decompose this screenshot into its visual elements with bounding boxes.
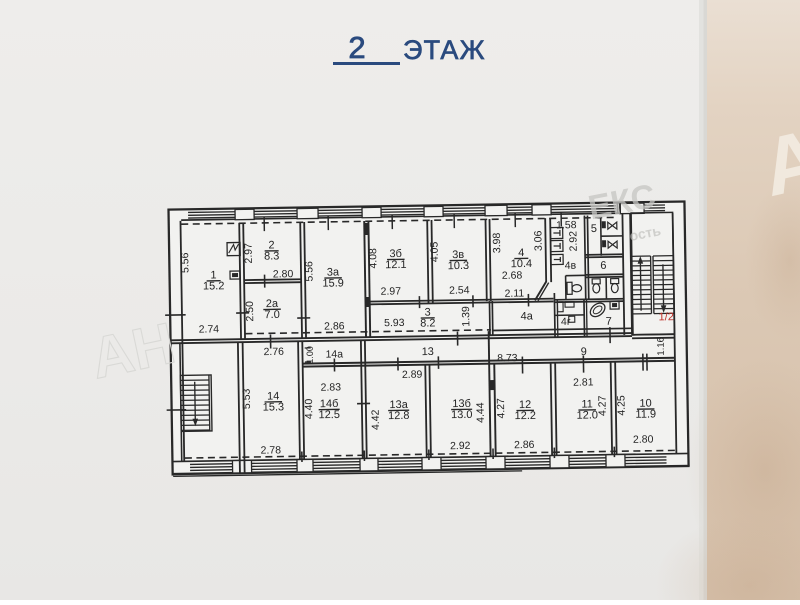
svg-text:2.97: 2.97 [381, 285, 402, 297]
svg-text:1.39: 1.39 [460, 306, 472, 327]
svg-text:2.81: 2.81 [573, 376, 594, 388]
svg-text:5.53: 5.53 [241, 388, 253, 409]
svg-text:10.3: 10.3 [448, 260, 470, 272]
svg-text:2.92: 2.92 [450, 440, 471, 452]
svg-text:2.97: 2.97 [243, 243, 255, 264]
svg-text:2.83: 2.83 [321, 381, 342, 393]
svg-text:4г: 4г [561, 316, 571, 328]
svg-text:2.68: 2.68 [502, 270, 523, 282]
svg-text:2.80: 2.80 [273, 268, 294, 280]
svg-text:4в: 4в [565, 260, 577, 272]
svg-text:4.05: 4.05 [429, 241, 441, 262]
svg-text:7: 7 [606, 316, 612, 328]
svg-text:5.56: 5.56 [303, 261, 315, 282]
svg-text:3.06: 3.06 [532, 230, 544, 251]
svg-text:4.44: 4.44 [475, 402, 487, 423]
svg-text:2.54: 2.54 [449, 284, 470, 296]
svg-text:2: 2 [348, 30, 365, 65]
svg-text:2.50: 2.50 [244, 301, 256, 322]
svg-text:2.86: 2.86 [514, 439, 535, 451]
svg-text:2.78: 2.78 [260, 444, 281, 456]
svg-text:4.25: 4.25 [615, 395, 627, 416]
svg-text:4.42: 4.42 [370, 409, 382, 430]
svg-text:12.0: 12.0 [576, 409, 598, 421]
svg-text:3.98: 3.98 [491, 232, 503, 253]
svg-text:10.4: 10.4 [511, 258, 533, 270]
svg-text:13.0: 13.0 [451, 409, 473, 421]
svg-text:1.16: 1.16 [656, 337, 667, 356]
svg-text:12.8: 12.8 [388, 410, 410, 422]
svg-text:8.2: 8.2 [420, 317, 435, 329]
svg-text:2.80: 2.80 [633, 434, 654, 446]
svg-text:4.27: 4.27 [596, 395, 608, 416]
svg-text:1/2: 1/2 [659, 311, 674, 323]
svg-text:5.93: 5.93 [384, 317, 405, 329]
svg-text:7.0: 7.0 [264, 309, 279, 321]
svg-text:2.11: 2.11 [504, 288, 524, 300]
svg-text:15.2: 15.2 [203, 280, 225, 292]
svg-text:15.3: 15.3 [263, 401, 285, 413]
svg-text:14а: 14а [325, 348, 343, 360]
svg-text:11.9: 11.9 [635, 408, 656, 420]
svg-text:12.5: 12.5 [318, 409, 340, 421]
svg-text:2.86: 2.86 [324, 320, 345, 332]
svg-text:4.08: 4.08 [367, 248, 379, 269]
svg-text:8.3: 8.3 [264, 250, 279, 262]
svg-text:1.58: 1.58 [556, 219, 577, 231]
svg-text:4.27: 4.27 [495, 398, 507, 419]
svg-text:8.73: 8.73 [497, 352, 518, 364]
svg-text:4.40: 4.40 [303, 398, 315, 419]
svg-text:2.89: 2.89 [402, 369, 423, 381]
svg-text:6: 6 [600, 260, 606, 272]
svg-text:2.74: 2.74 [199, 323, 220, 335]
svg-text:2.92: 2.92 [567, 231, 579, 252]
svg-text:2.76: 2.76 [263, 346, 284, 358]
svg-text:ЭТАЖ: ЭТАЖ [403, 35, 486, 65]
svg-text:4а: 4а [521, 310, 534, 322]
svg-text:12.1: 12.1 [385, 259, 407, 271]
svg-text:13: 13 [422, 346, 434, 358]
svg-text:1.00: 1.00 [305, 346, 315, 364]
svg-text:9: 9 [581, 346, 587, 358]
svg-text:15.9: 15.9 [322, 277, 344, 289]
svg-text:12.2: 12.2 [514, 410, 536, 422]
svg-text:5.56: 5.56 [179, 252, 191, 273]
